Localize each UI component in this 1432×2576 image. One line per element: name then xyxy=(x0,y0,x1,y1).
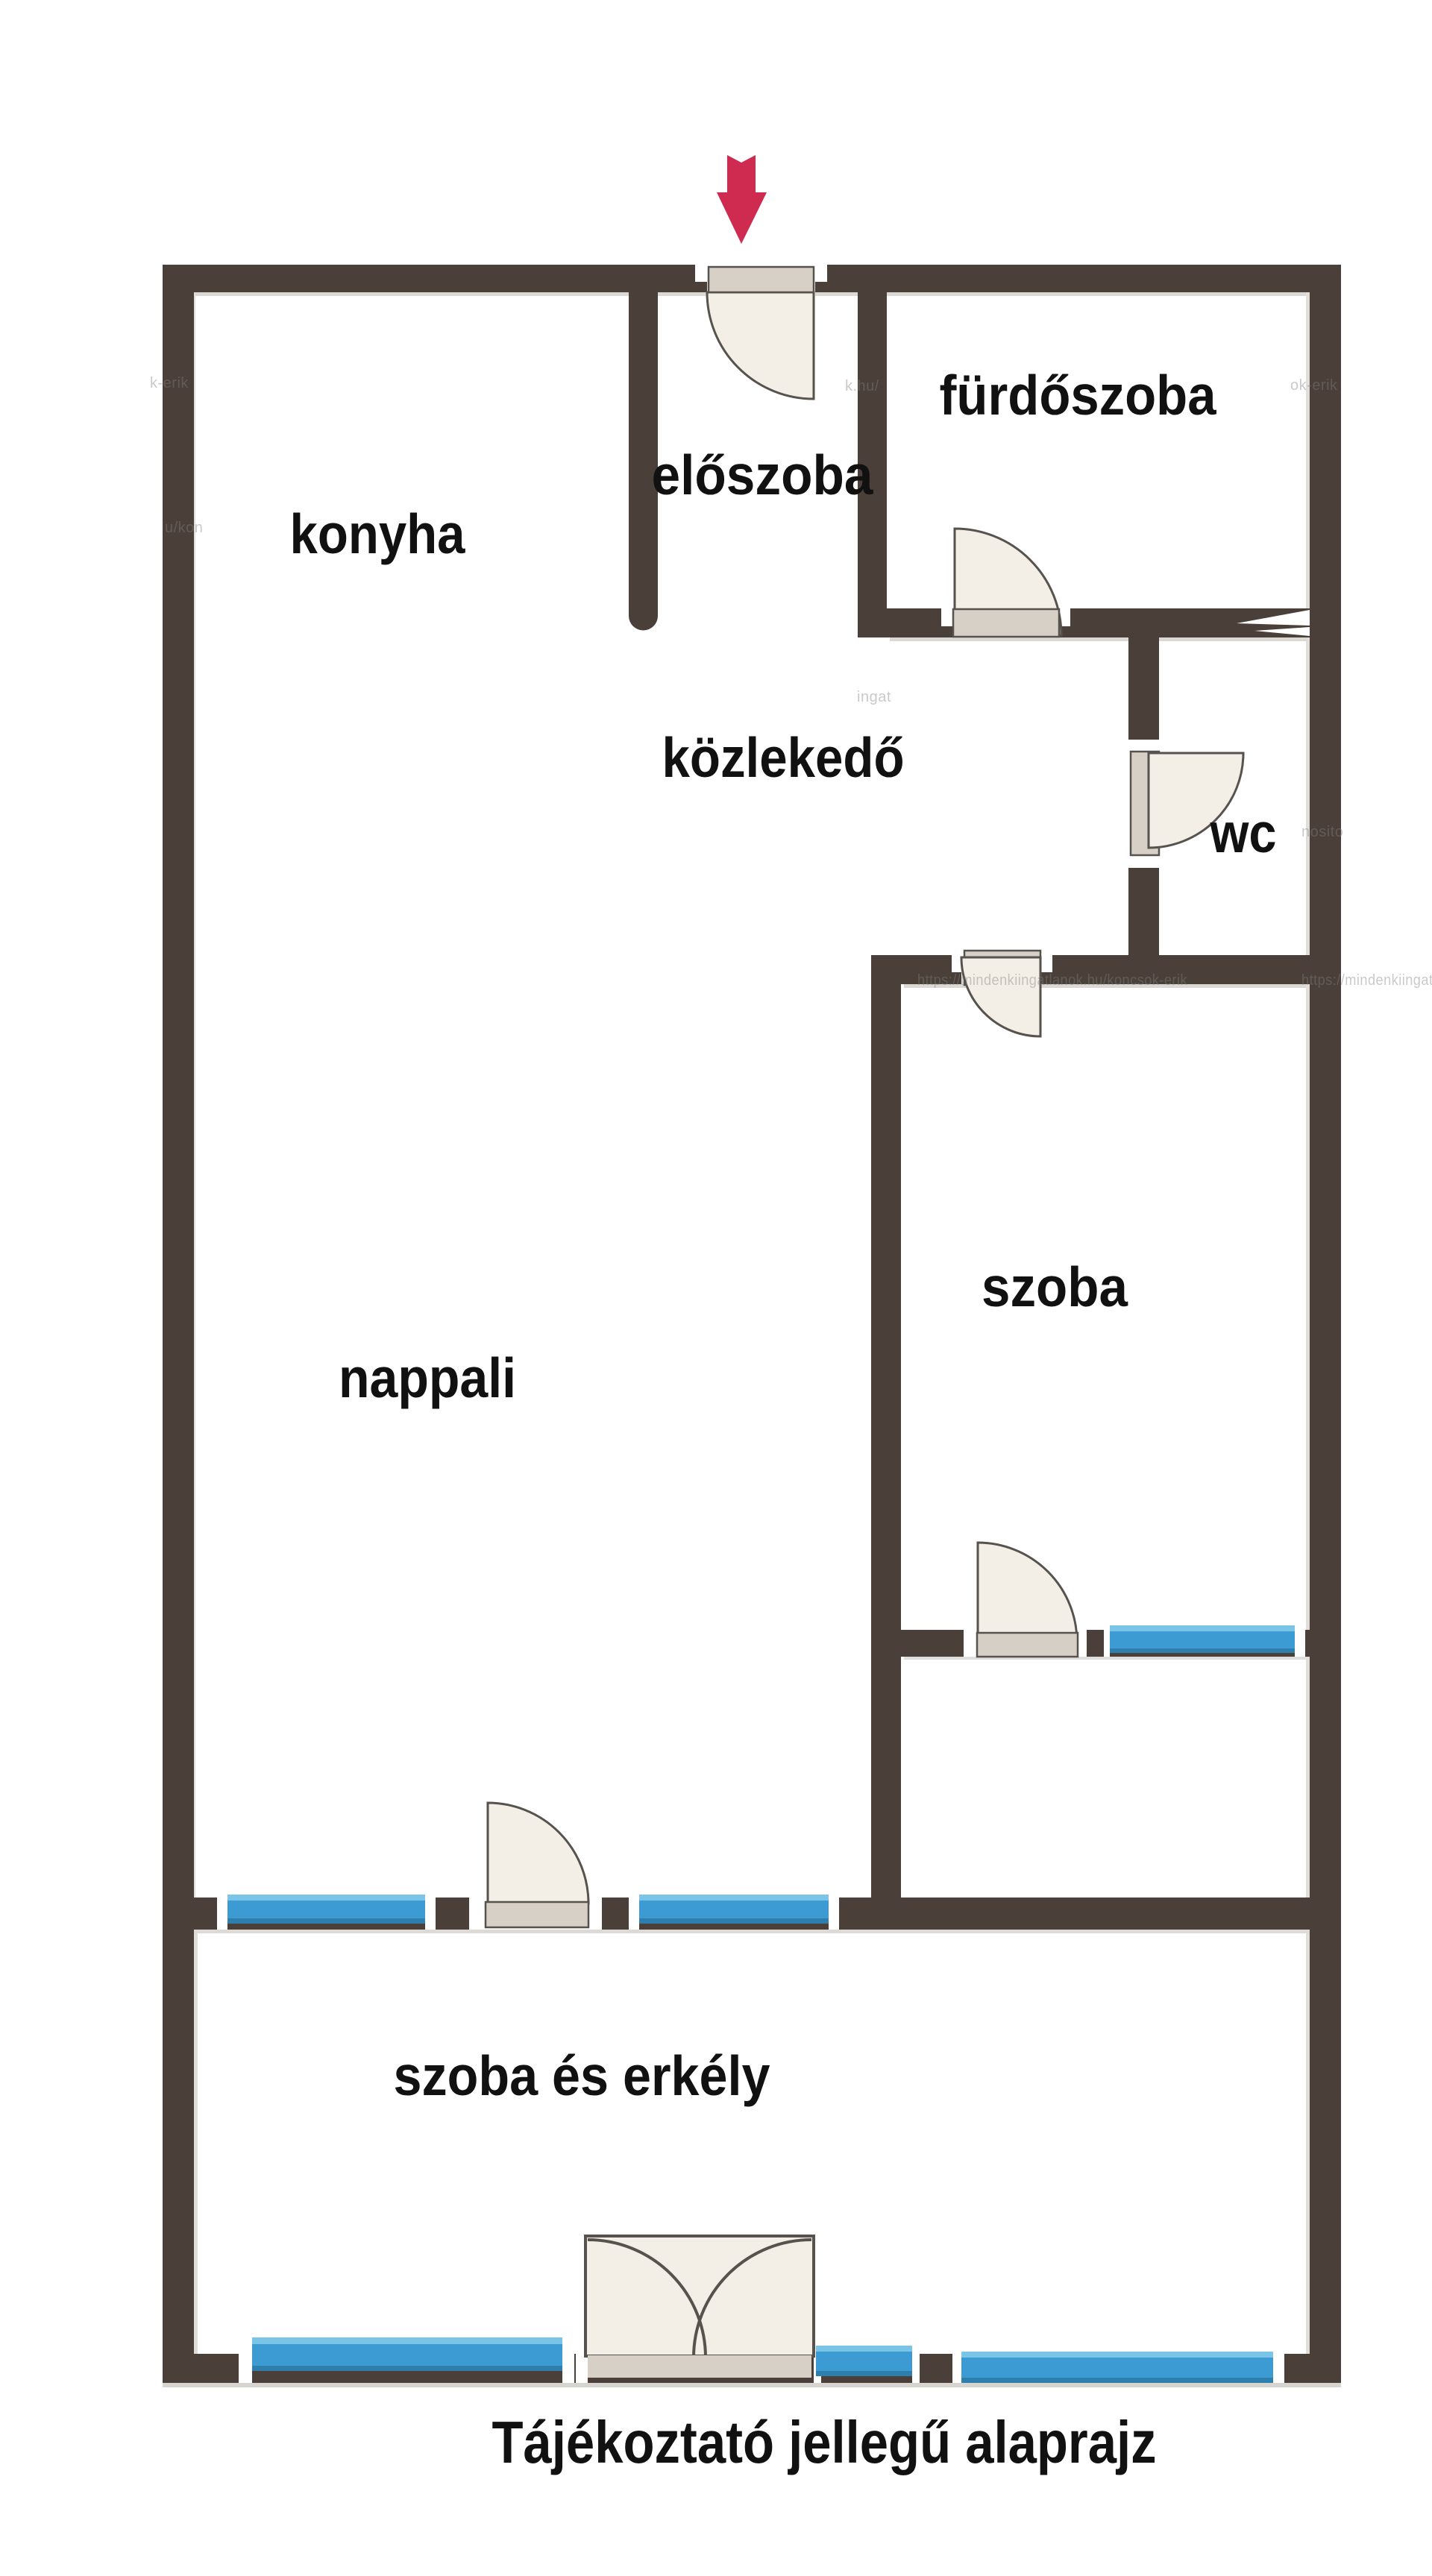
svg-text:előszoba: előszoba xyxy=(652,444,874,506)
svg-text:Tájékoztató jellegű alaprajz: Tájékoztató jellegű alaprajz xyxy=(492,2409,1157,2475)
svg-text:fürdőszoba: fürdőszoba xyxy=(940,364,1217,426)
svg-text:konyha: konyha xyxy=(290,503,466,565)
svg-text:wc: wc xyxy=(1210,802,1277,864)
svg-text:u/kon: u/kon xyxy=(165,520,203,536)
svg-text:ingat: ingat xyxy=(857,689,891,705)
svg-text:k-erik: k-erik xyxy=(150,375,189,391)
svg-text:https://mindenkiingatlanok.hu/: https://mindenkiingatlanok.hu/koncsok-er… xyxy=(1301,972,1432,989)
svg-text:https://mindenkiingatlanok.hu/: https://mindenkiingatlanok.hu/koncsok-er… xyxy=(917,972,1187,989)
svg-text:közlekedő: közlekedő xyxy=(662,726,905,789)
svg-text:ok-erik: ok-erik xyxy=(1290,377,1338,394)
svg-text:nosito: nosito xyxy=(1301,824,1343,840)
svg-text:nappali: nappali xyxy=(339,1347,516,1409)
svg-text:szoba és erkély: szoba és erkély xyxy=(394,2044,770,2107)
svg-text:szoba: szoba xyxy=(982,1256,1128,1318)
svg-text:k.hu/: k.hu/ xyxy=(845,378,879,394)
